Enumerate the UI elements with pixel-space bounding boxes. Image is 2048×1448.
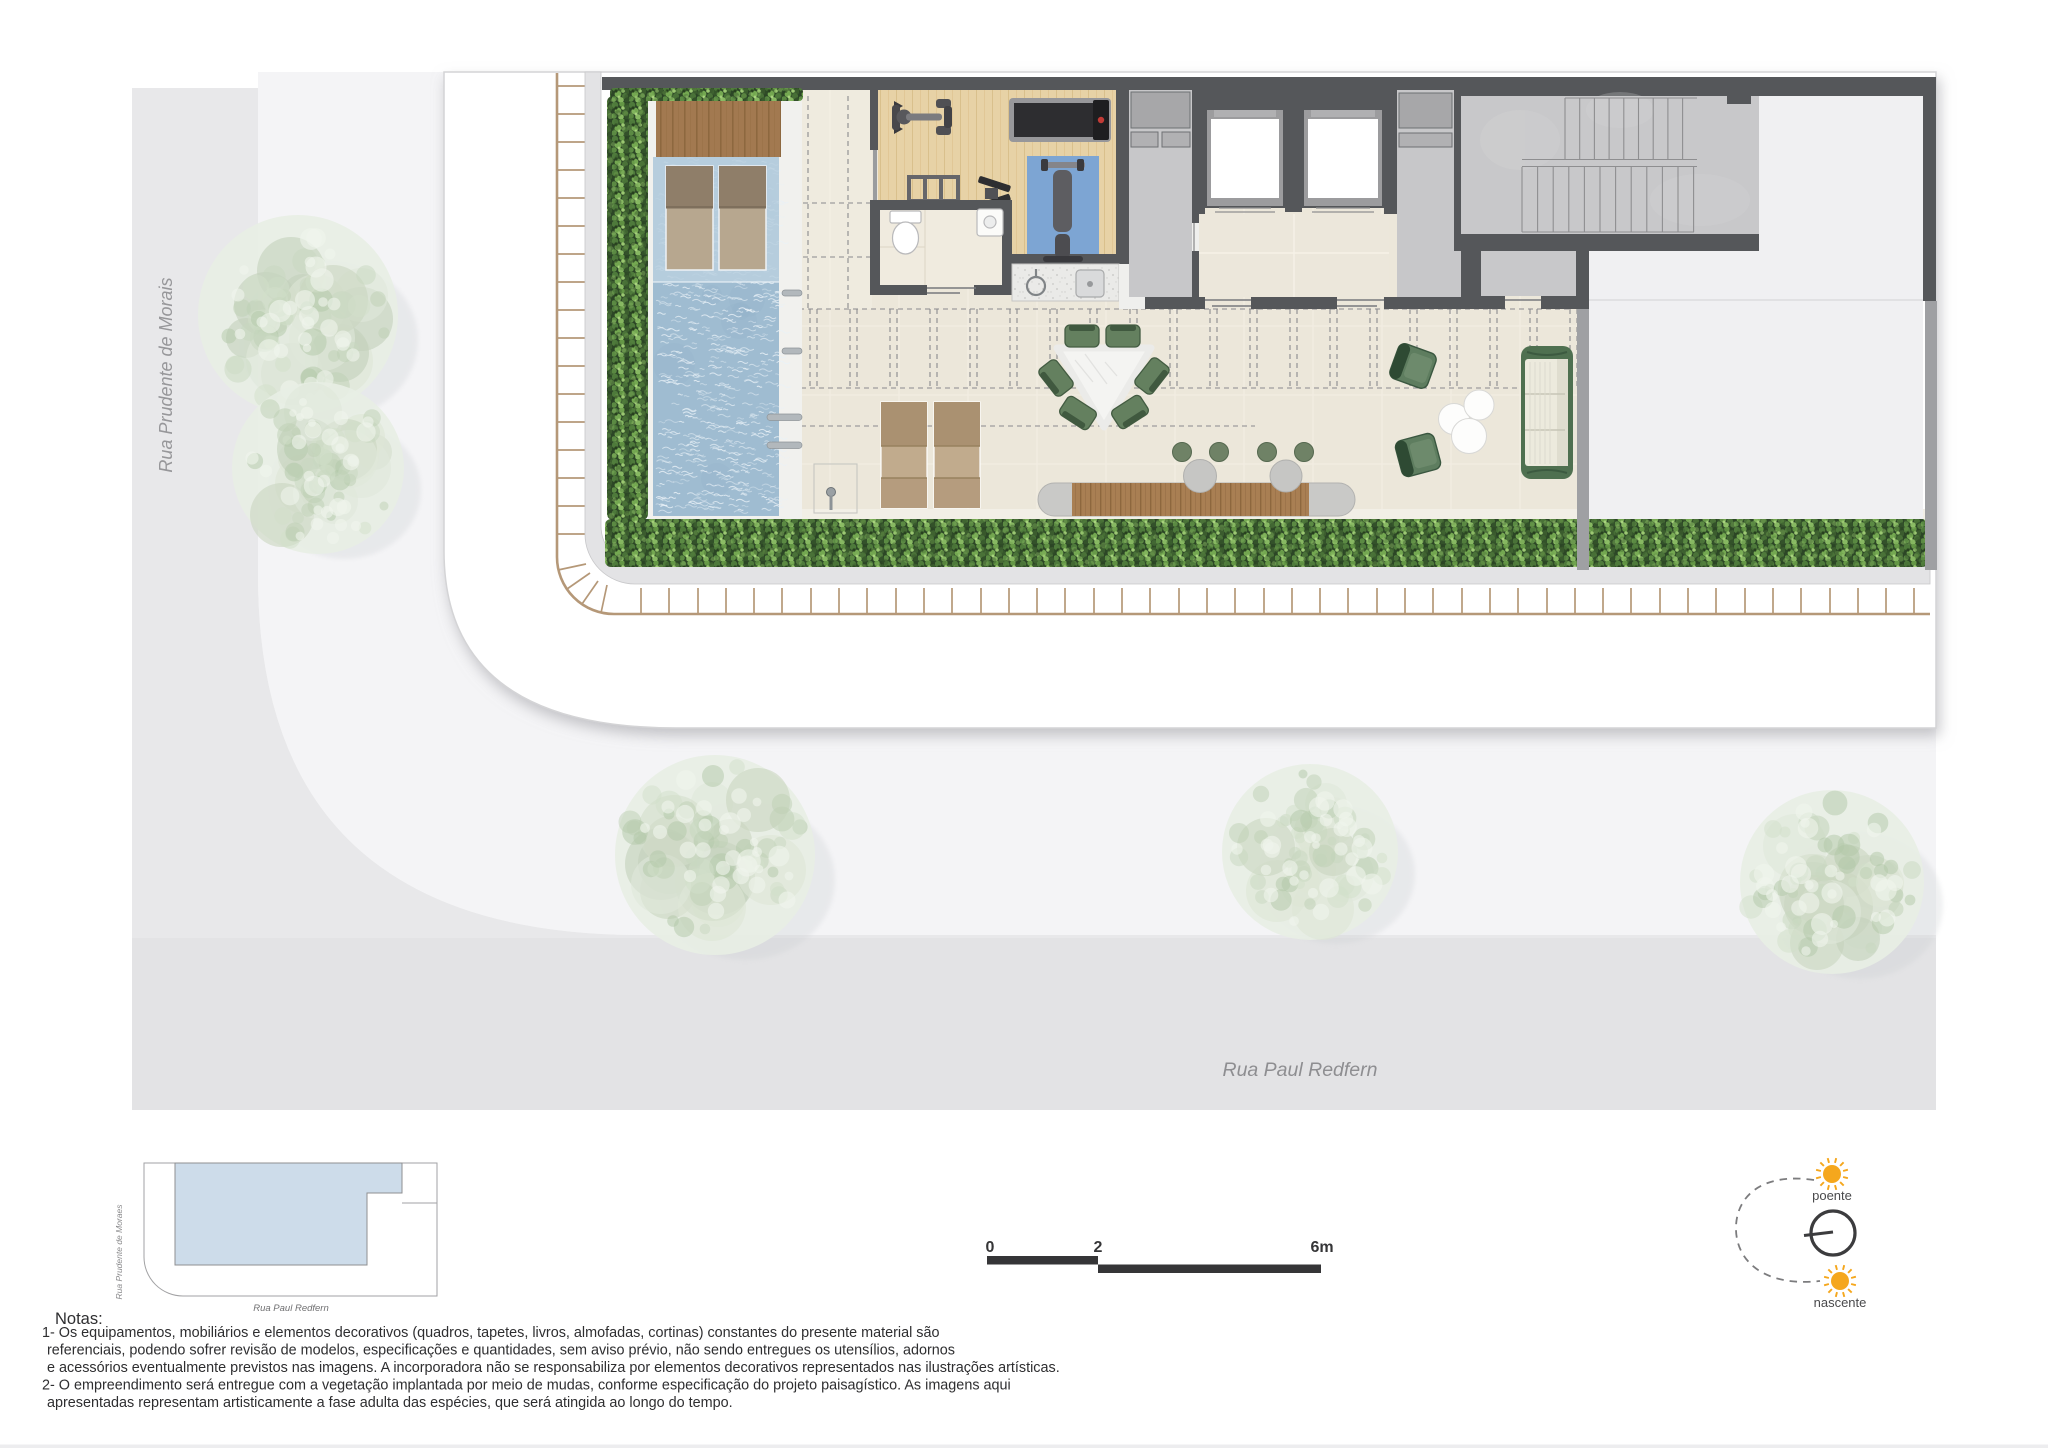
svg-text:Rua Prudente de Morais: Rua Prudente de Morais [156, 277, 176, 472]
svg-text:referenciais, podendo sofrer r: referenciais, podendo sofrer revisão de … [47, 1343, 955, 1359]
svg-text:Rua Prudente de Moraes: Rua Prudente de Moraes [114, 1204, 124, 1300]
svg-text:1- Os equipamentos, mobiliário: 1- Os equipamentos, mobiliários e elemen… [42, 1325, 939, 1341]
svg-text:Rua Paul Redfern: Rua Paul Redfern [1222, 1059, 1377, 1081]
svg-text:2: 2 [1094, 1239, 1103, 1256]
svg-text:0: 0 [986, 1239, 995, 1256]
svg-text:6m: 6m [1310, 1239, 1333, 1256]
svg-text:Rua Paul Redfern: Rua Paul Redfern [253, 1303, 329, 1314]
svg-text:nascente: nascente [1814, 1295, 1867, 1310]
svg-text:e acessórios eventualmente pre: e acessórios eventualmente previstos nas… [47, 1360, 1060, 1376]
svg-text:poente: poente [1812, 1188, 1852, 1203]
svg-text:apresentadas representam artis: apresentadas representam artisticamente … [47, 1395, 733, 1411]
svg-text:2- O empreendimento será entre: 2- O empreendimento será entregue com a … [42, 1378, 1011, 1394]
